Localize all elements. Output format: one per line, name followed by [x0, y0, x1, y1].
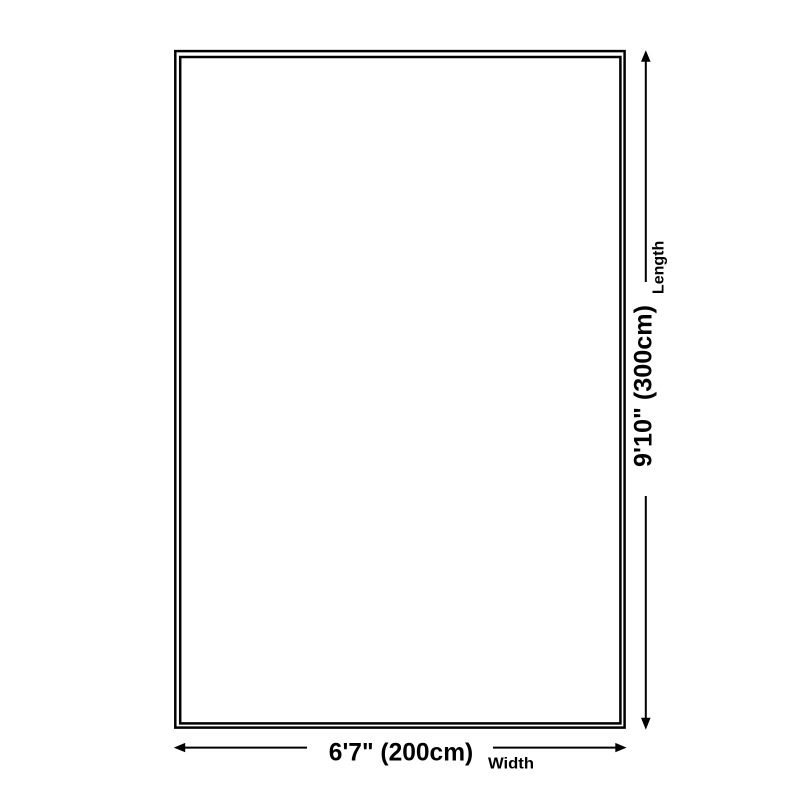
svg-text:6'7" (200cm): 6'7" (200cm) — [329, 739, 473, 767]
svg-text:Length: Length — [651, 241, 668, 294]
svg-text:9'10" (300cm): 9'10" (300cm) — [630, 305, 658, 467]
svg-text:Width: Width — [488, 756, 534, 773]
